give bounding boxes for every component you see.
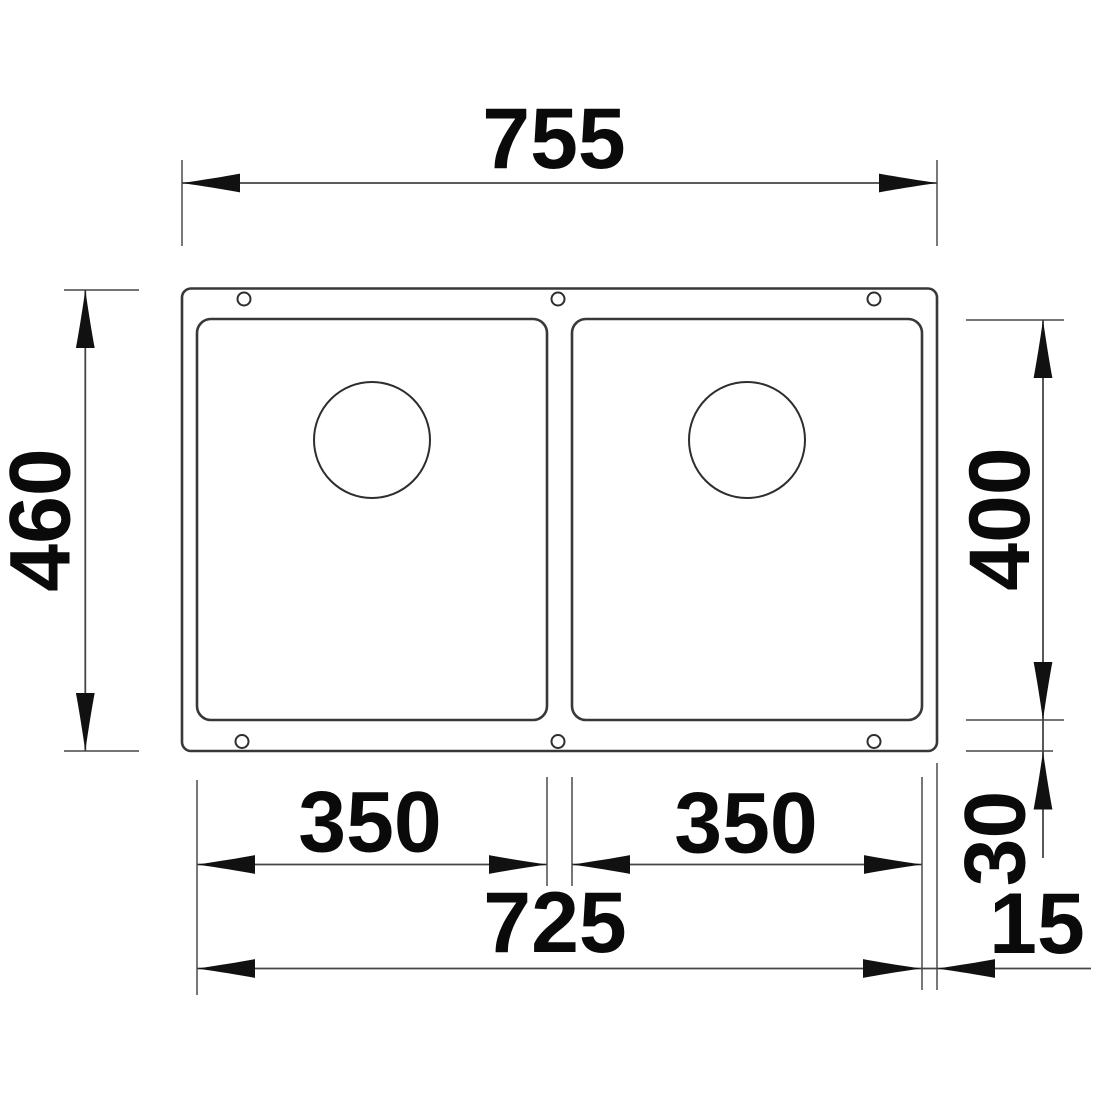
svg-text:30: 30 <box>948 791 1044 887</box>
svg-text:400: 400 <box>952 447 1048 591</box>
svg-text:15: 15 <box>989 876 1085 972</box>
svg-text:460: 460 <box>0 448 89 592</box>
svg-text:755: 755 <box>482 91 626 187</box>
svg-text:350: 350 <box>298 775 442 871</box>
svg-text:350: 350 <box>674 776 818 872</box>
svg-text:725: 725 <box>483 875 627 971</box>
